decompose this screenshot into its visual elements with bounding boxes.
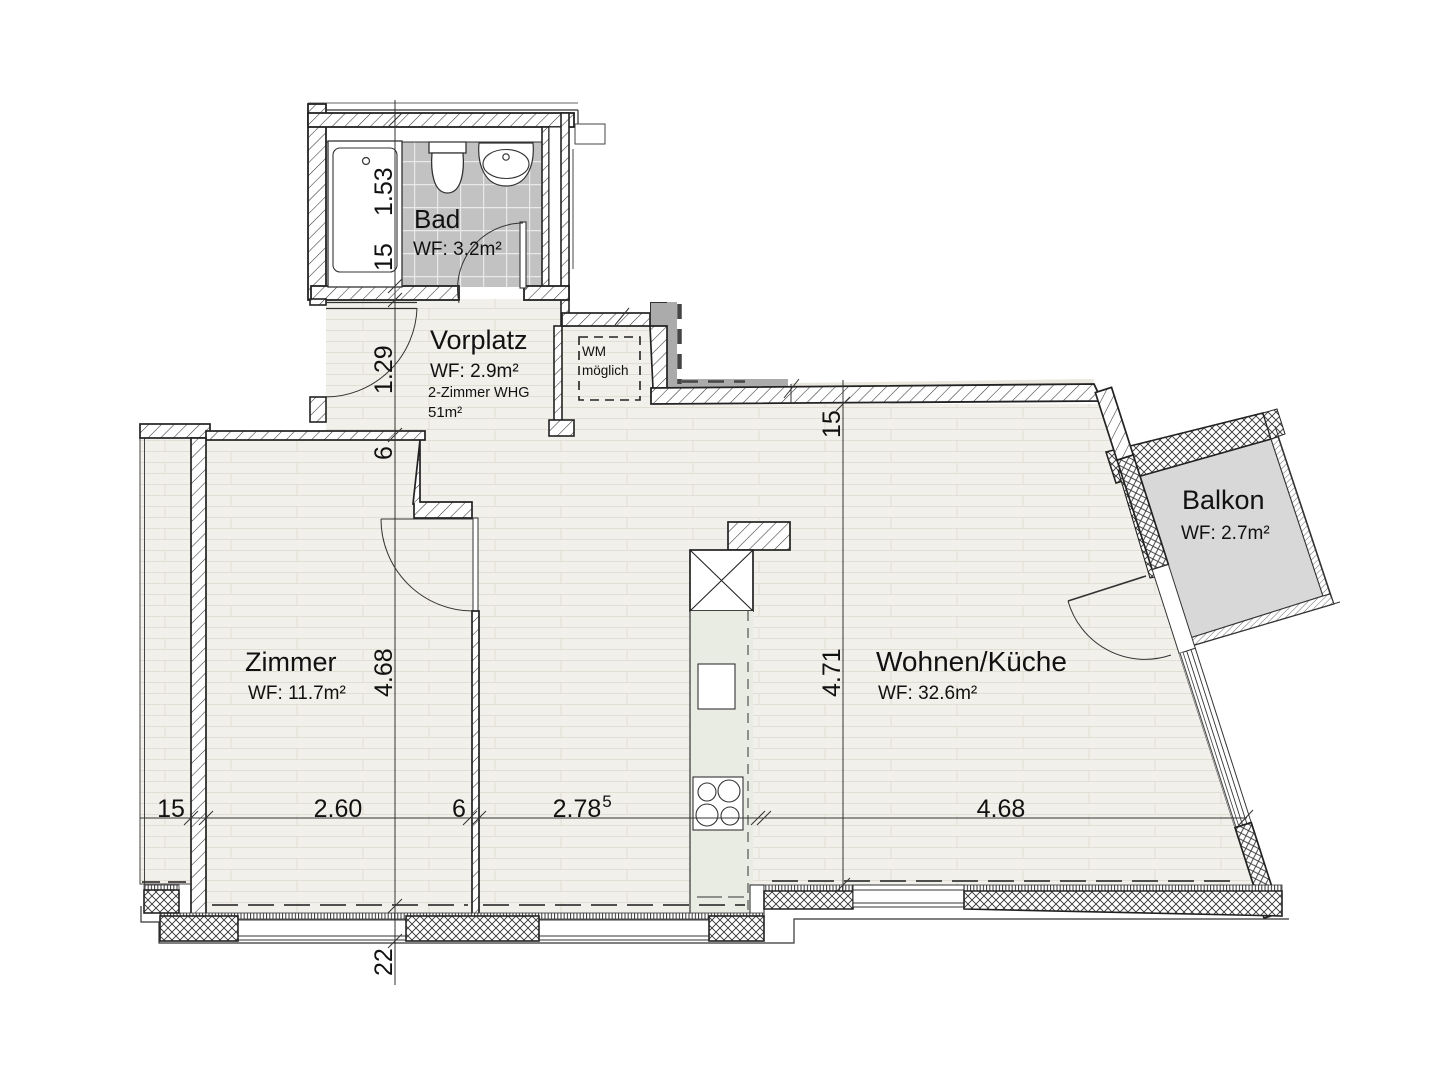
svg-text:Wohnen/Küche: Wohnen/Küche [876,646,1067,677]
svg-text:6: 6 [452,795,466,823]
svg-text:WF: 2.9m²: WF: 2.9m² [430,361,519,382]
svg-text:22: 22 [370,948,398,976]
svg-text:4.68: 4.68 [977,795,1026,823]
svg-text:WF: 2.7m²: WF: 2.7m² [1181,523,1270,544]
svg-text:WM: WM [582,344,606,359]
svg-text:4.71: 4.71 [818,648,846,697]
svg-text:1.53: 1.53 [370,167,398,216]
svg-text:WF: 11.7m²: WF: 11.7m² [248,683,346,704]
svg-text:Bad: Bad [414,204,460,234]
svg-text:6: 6 [370,446,398,460]
svg-text:WF: 3.2m²: WF: 3.2m² [413,239,502,260]
svg-text:2-Zimmer WHG: 2-Zimmer WHG [428,385,530,401]
svg-text:2.78: 2.78 [553,795,602,823]
svg-text:5: 5 [602,792,611,811]
svg-text:möglich: möglich [582,363,629,378]
svg-text:1.29: 1.29 [370,345,398,394]
svg-text:Zimmer: Zimmer [245,647,336,677]
svg-text:Balkon: Balkon [1182,485,1265,515]
svg-text:WF: 32.6m²: WF: 32.6m² [878,683,977,704]
svg-text:2.60: 2.60 [314,795,363,823]
svg-text:15: 15 [818,410,846,438]
svg-text:51m²: 51m² [428,404,462,421]
svg-text:15: 15 [370,243,398,271]
svg-text:Vorplatz: Vorplatz [430,325,528,355]
svg-text:15: 15 [157,795,185,823]
svg-text:4.68: 4.68 [370,648,398,697]
